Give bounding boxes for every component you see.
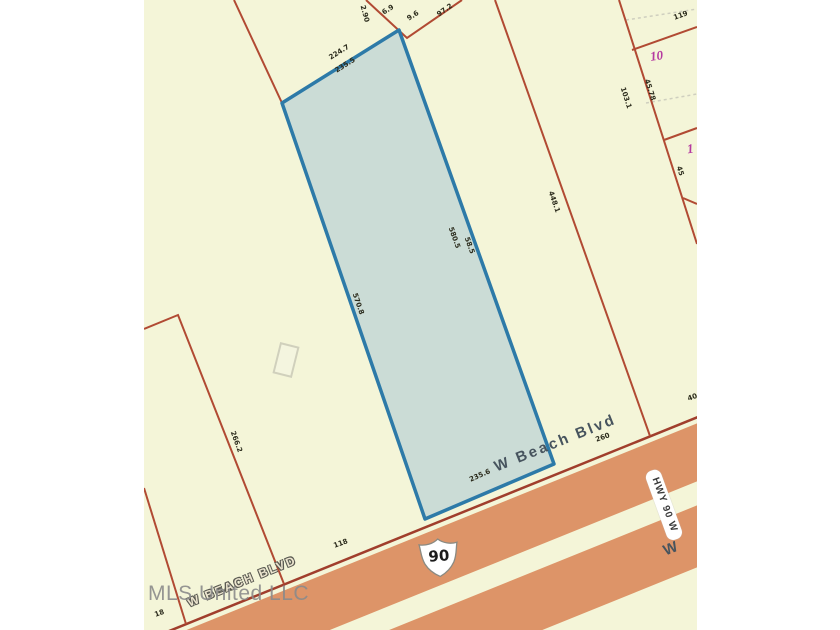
boundary-line — [234, 0, 282, 103]
boundary-line — [619, 0, 697, 244]
us-route-90-shield: 90 — [417, 537, 462, 580]
boundary-line — [632, 27, 697, 50]
boundary-line — [664, 128, 697, 140]
boundary-line — [683, 198, 697, 204]
parcel-boundaries-layer — [144, 0, 697, 630]
watermark: MLS United LLC — [148, 582, 309, 606]
lot-number: 10 — [649, 48, 664, 63]
plat-map-page: { "map": { "watermark": "MLS United LLC"… — [0, 0, 840, 630]
plat-map: 2.90 6.9 9.6 97.2 224.7 235.5 119 103.1 … — [144, 0, 697, 630]
subject-parcel — [282, 30, 554, 519]
route-shield-number: 90 — [417, 546, 460, 567]
boundary-line — [144, 315, 284, 584]
